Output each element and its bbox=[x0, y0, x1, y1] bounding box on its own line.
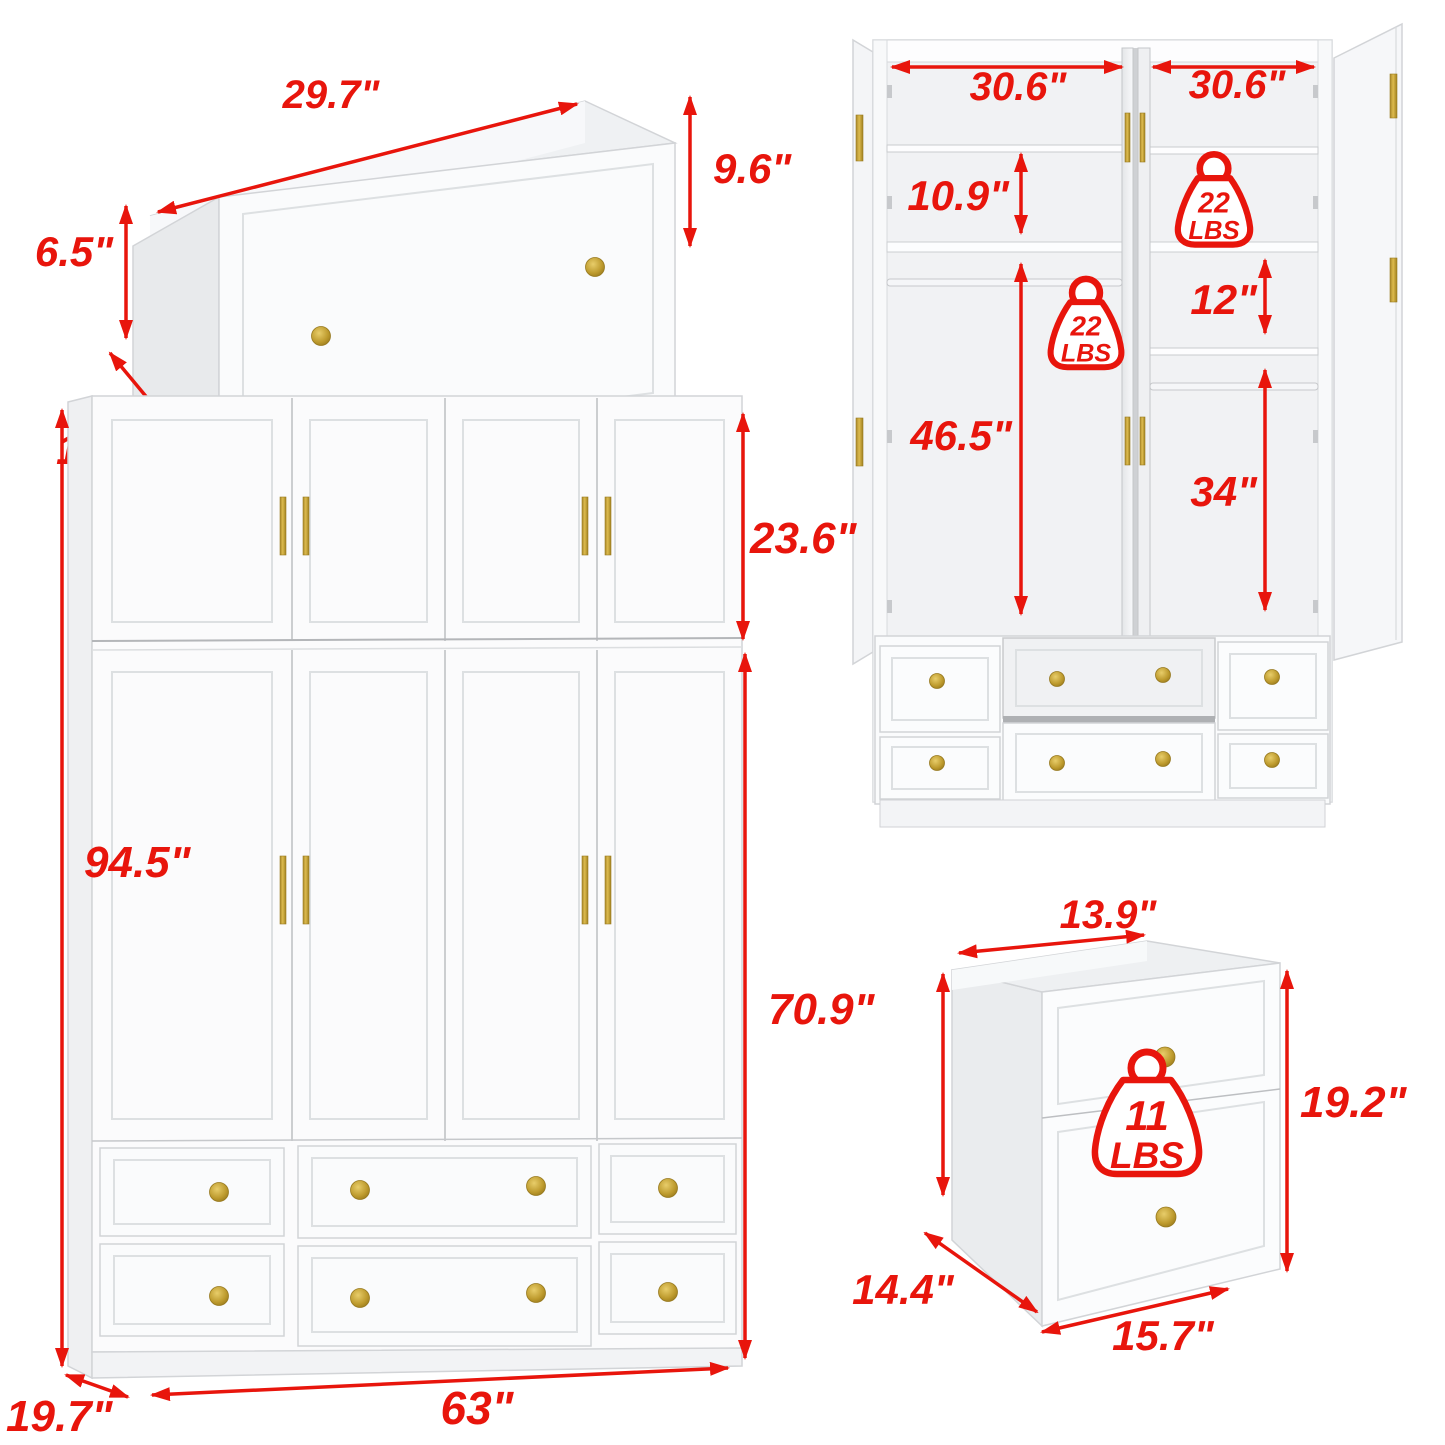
drawer-knob bbox=[659, 1283, 678, 1302]
wardrobe-side-panel bbox=[68, 396, 92, 1378]
drawer-knob bbox=[1265, 670, 1280, 685]
dim-left-section-width: 30.6" bbox=[970, 65, 1068, 109]
hinge-icon bbox=[887, 600, 892, 613]
drawer-knob bbox=[1156, 752, 1171, 767]
door-handle bbox=[605, 497, 611, 555]
dim-front-height: 19.2" bbox=[1300, 1078, 1408, 1127]
drawer-small-view: 11 LBS 13.9" 19.2" 14.4" 15.7" bbox=[852, 893, 1407, 1359]
hutch-shelf-left bbox=[887, 145, 1122, 152]
dim-depth: 19.7" bbox=[6, 1392, 114, 1441]
weight-value: 22 bbox=[1197, 187, 1230, 219]
weight-value: 11 bbox=[1125, 1092, 1169, 1139]
drawer-knob bbox=[930, 674, 945, 689]
door-handle bbox=[605, 856, 611, 924]
hinge-icon bbox=[1313, 85, 1318, 98]
door-handle bbox=[1125, 113, 1130, 162]
drawer-knob bbox=[1265, 753, 1280, 768]
dim-front-width: 15.7" bbox=[1112, 1312, 1215, 1359]
drawer-knob bbox=[527, 1284, 546, 1303]
hinge-icon bbox=[887, 430, 892, 443]
drawer-knob bbox=[586, 258, 605, 277]
drawer-front bbox=[100, 1244, 284, 1336]
drawer-knob bbox=[351, 1181, 370, 1200]
dim-top-shelf-height: 10.9" bbox=[907, 172, 1010, 219]
door-handle bbox=[856, 115, 863, 161]
drawer-knob bbox=[1050, 672, 1065, 687]
drawer-front bbox=[298, 1146, 591, 1238]
product-dimension-diagram: 29.7" 6.5" 14.4" 31.5" 9.6" bbox=[0, 0, 1445, 1445]
dim-left-hanging-height: 46.5" bbox=[909, 412, 1013, 459]
hutch-shelf-right bbox=[1150, 147, 1318, 154]
dim-front-height: 9.6" bbox=[713, 145, 792, 192]
hinge-icon bbox=[1313, 600, 1318, 613]
drawer-knob bbox=[351, 1289, 370, 1308]
weight-value: 22 bbox=[1069, 311, 1102, 342]
door-handle bbox=[303, 497, 309, 555]
drawer-knob bbox=[659, 1179, 678, 1198]
dim-total-height: 94.5" bbox=[84, 838, 192, 887]
weight-unit: LBS bbox=[1110, 1135, 1184, 1176]
dim-width: 63" bbox=[441, 1382, 515, 1434]
drawer-knob bbox=[1156, 1207, 1176, 1227]
door-handle bbox=[582, 856, 588, 924]
dim-top-width: 13.9" bbox=[1060, 893, 1158, 937]
drawer-front bbox=[1218, 642, 1328, 730]
hinge-icon bbox=[1313, 196, 1318, 209]
diagram-svg: 29.7" 6.5" 14.4" 31.5" 9.6" bbox=[0, 0, 1445, 1445]
drawer-knob bbox=[1156, 668, 1171, 683]
door-handle bbox=[1140, 417, 1145, 465]
dim-back-height: 6.5" bbox=[35, 228, 114, 275]
wardrobe-base-plinth bbox=[880, 800, 1325, 827]
wardrobe-front-view: 94.5" 23.6" 70.9" 63" 19.7" bbox=[6, 396, 876, 1441]
hinge-icon bbox=[1313, 430, 1318, 443]
dim-right-hanging-height: 34" bbox=[1190, 468, 1258, 515]
door-handle bbox=[1390, 74, 1397, 118]
drawer-knob bbox=[527, 1177, 546, 1196]
drawer-side-face bbox=[952, 970, 1042, 1326]
door-handle bbox=[856, 418, 863, 466]
hinge-icon bbox=[887, 196, 892, 209]
drawer-gap-shadow bbox=[1003, 716, 1215, 723]
door-handle bbox=[582, 497, 588, 555]
hutch-bottom-board bbox=[887, 242, 1318, 252]
wardrobe-top-board bbox=[873, 40, 1332, 62]
drawer-knob bbox=[1050, 756, 1065, 771]
hinge-icon bbox=[887, 85, 892, 98]
hanging-rod-right bbox=[1150, 383, 1318, 390]
dim-depth: 14.4" bbox=[852, 1266, 955, 1313]
center-door-gap bbox=[1133, 48, 1138, 654]
dim-top-cabinet-height: 23.6" bbox=[749, 514, 858, 563]
drawer-front bbox=[100, 1148, 284, 1236]
drawer-knob bbox=[210, 1287, 229, 1306]
door-handle bbox=[1390, 258, 1397, 302]
dim-top-width: 29.7" bbox=[282, 73, 381, 117]
wardrobe-interior-view: 30.6" 30.6" 10.9" 46.5" 12" 34" 22 LBS 2… bbox=[853, 24, 1402, 827]
door-handle bbox=[1125, 417, 1130, 465]
door-handle bbox=[280, 856, 286, 924]
drawer-knob bbox=[930, 756, 945, 771]
weight-unit: LBS bbox=[1061, 340, 1111, 368]
dim-lower-height: 70.9" bbox=[768, 985, 876, 1034]
open-door-right bbox=[1334, 24, 1402, 660]
drawer-knob bbox=[210, 1183, 229, 1202]
dim-right-section-width: 30.6" bbox=[1189, 63, 1287, 107]
shelf-right bbox=[1150, 348, 1318, 355]
door-handle bbox=[303, 856, 309, 924]
door-handle bbox=[280, 497, 286, 555]
weight-unit: LBS bbox=[1188, 217, 1239, 245]
drawer-knob bbox=[312, 327, 331, 346]
door-handle bbox=[1140, 113, 1145, 162]
dim-right-shelf-gap: 12" bbox=[1190, 276, 1258, 323]
